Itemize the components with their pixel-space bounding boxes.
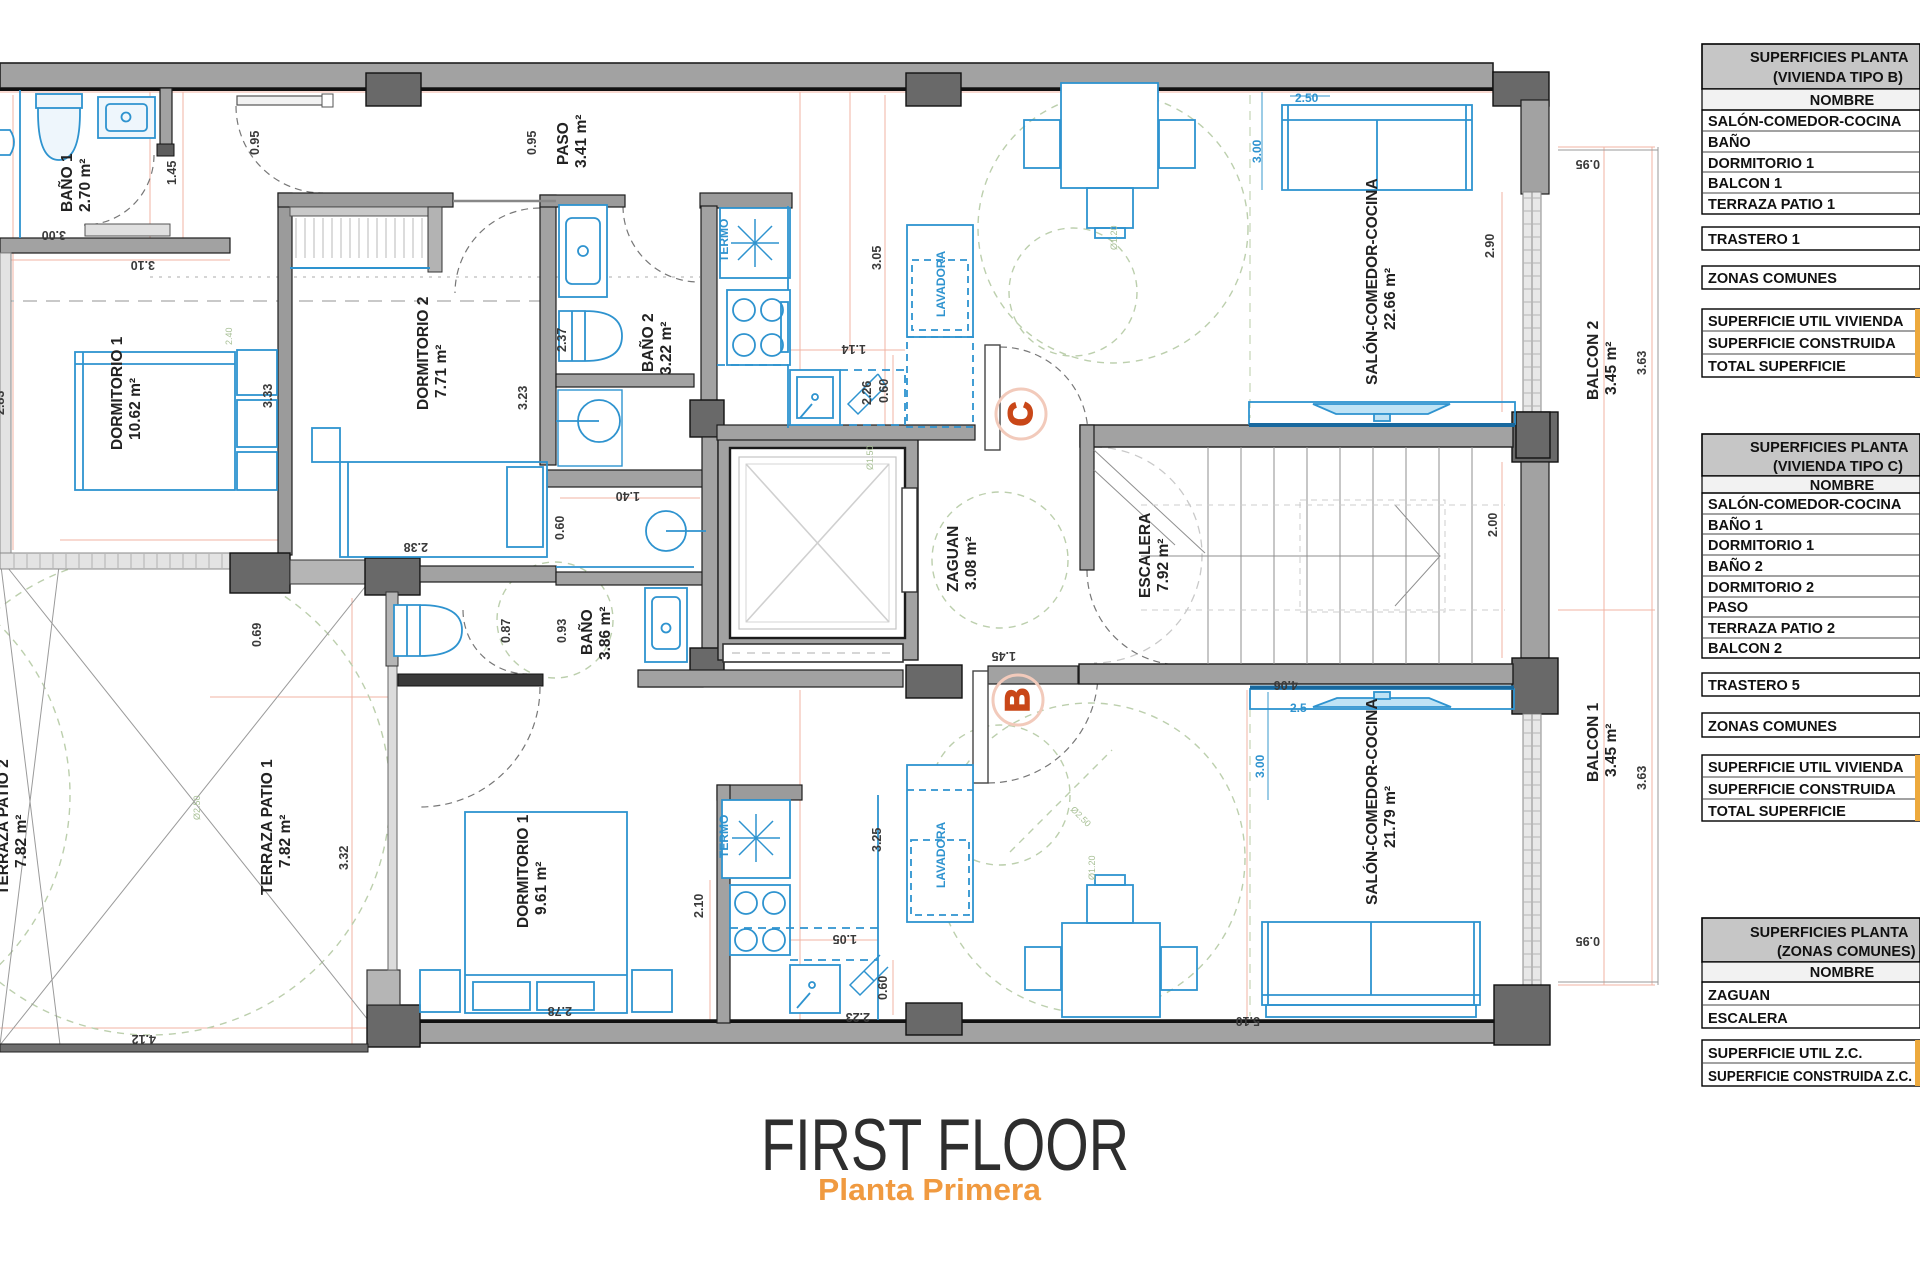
svg-text:SUPERFICIES PLANTA: SUPERFICIES PLANTA	[1750, 50, 1909, 66]
svg-text:DORMITORIO 1: DORMITORIO 1	[515, 814, 532, 928]
svg-text:SALÓN-COMEDOR-COCINA: SALÓN-COMEDOR-COCINA	[1708, 495, 1902, 513]
svg-text:0.60: 0.60	[553, 516, 567, 540]
svg-text:BAÑO 2: BAÑO 2	[1708, 557, 1763, 575]
svg-text:SUPERFICIE UTIL VIVIENDA: SUPERFICIE UTIL VIVIENDA	[1708, 760, 1904, 776]
svg-text:1.05: 1.05	[833, 932, 857, 946]
svg-text:ESCALERA: ESCALERA	[1708, 1011, 1788, 1027]
svg-text:3.63: 3.63	[1635, 351, 1649, 375]
svg-text:3.45 m²: 3.45 m²	[1603, 724, 1620, 777]
svg-text:BAÑO: BAÑO	[578, 609, 596, 655]
svg-text:2.37: 2.37	[555, 328, 569, 352]
svg-text:(VIVIENDA TIPO C): (VIVIENDA TIPO C)	[1773, 459, 1903, 475]
svg-text:TERRAZA PATIO 1: TERRAZA PATIO 1	[259, 759, 276, 895]
svg-text:SUPERFICIES PLANTA: SUPERFICIES PLANTA	[1750, 925, 1909, 941]
svg-text:BAÑO 1: BAÑO 1	[58, 153, 76, 212]
svg-text:2.40: 2.40	[224, 327, 234, 345]
svg-text:BALCON 1: BALCON 1	[1708, 176, 1782, 192]
svg-text:22.66 m²: 22.66 m²	[1382, 268, 1399, 330]
svg-text:LAVADORA: LAVADORA	[934, 821, 948, 888]
svg-text:SUPERFICIE CONSTRUIDA: SUPERFICIE CONSTRUIDA	[1708, 336, 1896, 352]
svg-text:TERRAZA PATIO 1: TERRAZA PATIO 1	[1708, 197, 1835, 213]
svg-text:C: C	[1002, 402, 1040, 427]
svg-text:0.95: 0.95	[248, 131, 262, 155]
svg-text:10.62 m²: 10.62 m²	[127, 378, 144, 440]
svg-text:3.00: 3.00	[1253, 754, 1267, 778]
svg-text:1.14: 1.14	[842, 342, 866, 356]
svg-text:0.95: 0.95	[1576, 157, 1600, 171]
svg-text:BAÑO 2: BAÑO 2	[639, 313, 657, 372]
svg-text:(ZONAS COMUNES): (ZONAS COMUNES)	[1777, 944, 1916, 960]
svg-text:2.26: 2.26	[860, 381, 874, 405]
svg-text:BAÑO 1: BAÑO 1	[1708, 516, 1763, 534]
svg-text:9.61 m²: 9.61 m²	[533, 862, 550, 915]
svg-text:BALCON 2: BALCON 2	[1585, 321, 1602, 400]
svg-text:3.00: 3.00	[42, 228, 66, 242]
svg-text:NOMBRE: NOMBRE	[1810, 93, 1875, 109]
svg-text:SALÓN-COMEDOR-COCINA: SALÓN-COMEDOR-COCINA	[1708, 112, 1902, 130]
svg-text:0.95: 0.95	[1576, 934, 1600, 948]
svg-text:3.45 m²: 3.45 m²	[1603, 342, 1620, 395]
svg-text:LAVADORA: LAVADORA	[934, 250, 948, 317]
svg-text:2.38: 2.38	[404, 540, 428, 554]
svg-text:5.10: 5.10	[1236, 1014, 1260, 1028]
svg-text:(VIVIENDA TIPO B): (VIVIENDA TIPO B)	[1773, 70, 1903, 86]
svg-text:PASO: PASO	[1708, 600, 1748, 616]
svg-text:3.86 m²: 3.86 m²	[597, 607, 614, 660]
svg-text:SUPERFICIE CONSTRUIDA: SUPERFICIE CONSTRUIDA	[1708, 782, 1896, 798]
svg-text:2.50: 2.50	[1295, 91, 1319, 105]
svg-text:3.10: 3.10	[131, 258, 155, 272]
svg-text:TERRAZA PATIO 2: TERRAZA PATIO 2	[1708, 621, 1835, 637]
svg-text:TOTAL SUPERFICIE: TOTAL SUPERFICIE	[1708, 359, 1846, 375]
svg-text:0.60: 0.60	[877, 379, 891, 403]
svg-text:Ø1.20: Ø1.20	[1109, 225, 1119, 250]
svg-text:Ø1.50: Ø1.50	[865, 445, 875, 470]
svg-text:4.06: 4.06	[1274, 678, 1298, 692]
svg-text:3.00: 3.00	[1250, 139, 1264, 163]
svg-text:2.5: 2.5	[1290, 701, 1307, 715]
svg-text:7.71 m²: 7.71 m²	[433, 345, 450, 398]
svg-text:2.00: 2.00	[1486, 513, 1500, 537]
svg-text:ZONAS COMUNES: ZONAS COMUNES	[1708, 271, 1837, 287]
svg-text:ZAGUAN: ZAGUAN	[945, 526, 962, 592]
svg-text:TRASTERO 5: TRASTERO 5	[1708, 678, 1800, 694]
svg-text:DORMITORIO 1: DORMITORIO 1	[109, 336, 126, 450]
svg-text:PASO: PASO	[555, 122, 572, 165]
svg-text:0.93: 0.93	[555, 619, 569, 643]
svg-text:3.32: 3.32	[337, 846, 351, 870]
svg-text:4.12: 4.12	[132, 1032, 156, 1046]
svg-text:BALCON 2: BALCON 2	[1708, 641, 1782, 657]
svg-text:DORMITORIO 1: DORMITORIO 1	[1708, 538, 1814, 554]
svg-text:SALÓN-COMEDOR-COCINA: SALÓN-COMEDOR-COCINA	[1363, 698, 1381, 905]
svg-text:Planta Primera: Planta Primera	[818, 1172, 1042, 1207]
svg-text:DORMITORIO 1: DORMITORIO 1	[1708, 156, 1814, 172]
svg-text:TRASTERO 1: TRASTERO 1	[1708, 232, 1800, 248]
svg-text:0.69: 0.69	[250, 623, 264, 647]
svg-text:3.33: 3.33	[261, 384, 275, 408]
svg-text:7.82 m²: 7.82 m²	[13, 815, 30, 868]
svg-text:3.41 m²: 3.41 m²	[573, 115, 590, 168]
svg-text:3.08 m²: 3.08 m²	[963, 537, 980, 590]
svg-text:1.45: 1.45	[165, 161, 179, 185]
svg-text:3.63: 3.63	[1635, 766, 1649, 790]
svg-text:0.87: 0.87	[499, 619, 513, 643]
svg-text:TOTAL SUPERFICIE: TOTAL SUPERFICIE	[1708, 804, 1846, 820]
svg-text:3.23: 3.23	[516, 386, 530, 410]
svg-text:2.70 m²: 2.70 m²	[77, 159, 94, 212]
svg-text:ZAGUAN: ZAGUAN	[1708, 988, 1770, 1004]
svg-text:TERMO: TERMO	[717, 815, 731, 858]
svg-text:2.78: 2.78	[548, 1004, 572, 1018]
svg-text:2.10: 2.10	[692, 894, 706, 918]
svg-text:BAÑO: BAÑO	[1708, 133, 1751, 151]
svg-text:DORMITORIO 2: DORMITORIO 2	[415, 297, 432, 410]
svg-text:SUPERFICIES PLANTA: SUPERFICIES PLANTA	[1750, 440, 1909, 456]
svg-text:SUPERFICIE CONSTRUIDA Z.C.: SUPERFICIE CONSTRUIDA Z.C.	[1708, 1069, 1912, 1085]
svg-text:TERRAZA PATIO 2: TERRAZA PATIO 2	[0, 759, 12, 895]
svg-text:21.79 m²: 21.79 m²	[1382, 786, 1399, 848]
svg-text:DORMITORIO 2: DORMITORIO 2	[1708, 580, 1814, 596]
svg-text:3.25: 3.25	[870, 828, 884, 852]
svg-text:2.23: 2.23	[846, 1010, 870, 1024]
svg-text:2.83: 2.83	[0, 391, 7, 415]
svg-text:3.05: 3.05	[870, 246, 884, 270]
svg-text:0.95: 0.95	[525, 131, 539, 155]
svg-text:ZONAS COMUNES: ZONAS COMUNES	[1708, 719, 1837, 735]
svg-text:0.60: 0.60	[876, 976, 890, 1000]
svg-text:7.82 m²: 7.82 m²	[277, 815, 294, 868]
svg-text:SUPERFICIE UTIL VIVIENDA: SUPERFICIE UTIL VIVIENDA	[1708, 314, 1904, 330]
svg-text:7.92 m²: 7.92 m²	[1155, 539, 1172, 592]
svg-text:SUPERFICIE UTIL Z.C.: SUPERFICIE UTIL Z.C.	[1708, 1046, 1862, 1062]
svg-text:Ø2.50: Ø2.50	[192, 795, 202, 820]
svg-text:B: B	[999, 688, 1037, 713]
svg-text:BALCON 1: BALCON 1	[1585, 702, 1602, 782]
svg-text:3.22 m²: 3.22 m²	[658, 322, 675, 375]
svg-text:TERMO: TERMO	[717, 219, 731, 262]
svg-text:1.45: 1.45	[992, 649, 1016, 663]
svg-text:2.90: 2.90	[1483, 234, 1497, 258]
svg-text:Ø1.20: Ø1.20	[1087, 855, 1097, 880]
svg-text:NOMBRE: NOMBRE	[1810, 965, 1875, 981]
svg-text:NOMBRE: NOMBRE	[1810, 478, 1875, 494]
svg-text:SALÓN-COMEDOR-COCINA: SALÓN-COMEDOR-COCINA	[1363, 178, 1381, 385]
svg-text:ESCALERA: ESCALERA	[1137, 513, 1154, 598]
svg-text:1.40: 1.40	[616, 489, 640, 503]
